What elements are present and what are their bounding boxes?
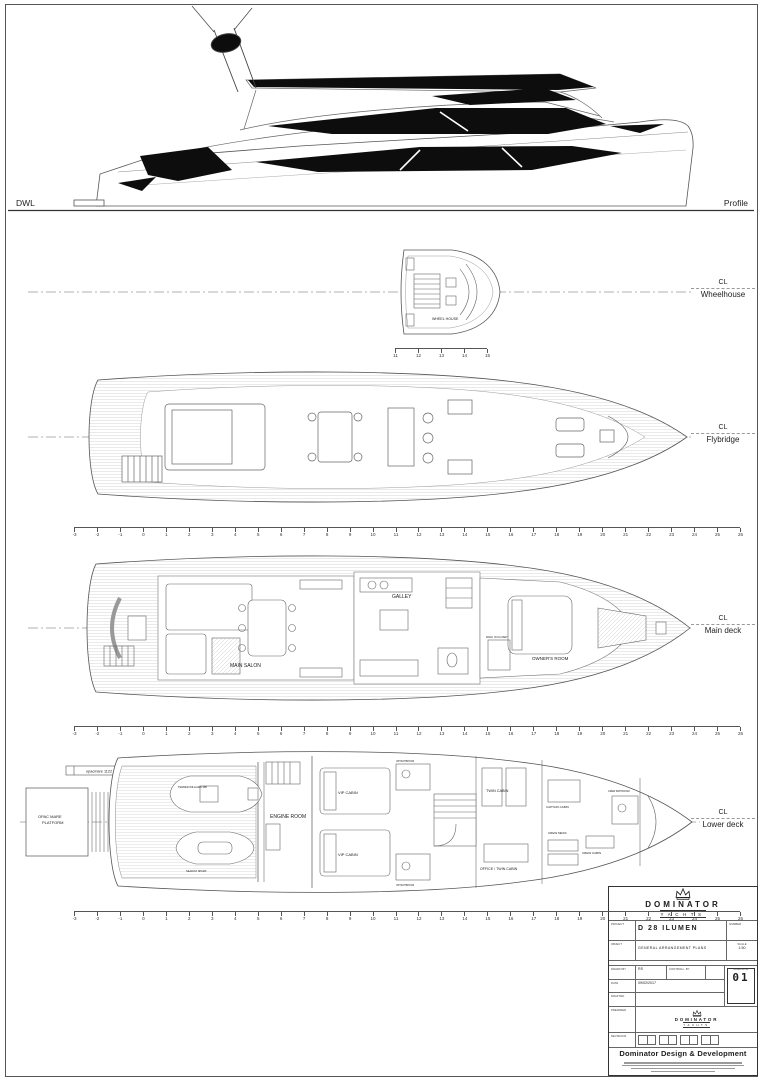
ruler-tick: 9 [350,912,351,916]
ruler-tick: 21 [625,727,626,731]
anchor-windlass [656,622,666,634]
owners-bed [508,596,572,654]
ruler-tick: 13 [441,912,442,916]
ruler-tick: 20 [602,528,603,532]
prepared-row: PREPARED DOMINATOR YACHTS [609,1006,757,1032]
ruler-tick: 26 [740,727,741,731]
drawing-nr-cell: DRAWING NR 01 [724,966,757,1006]
ruler-tick: 23 [671,912,672,916]
platform-label-1: OPAC MARE [38,814,62,819]
mini-brand-logo: DOMINATOR YACHTS [636,1007,757,1032]
ruler-tick: 0 [143,912,144,916]
vip-bathroom [396,854,430,880]
captain-cabin-label: CAPTAIN CABIN [546,805,569,809]
revision-box [659,1035,677,1045]
drawn-label: DRAWN BY [609,966,636,979]
ruler-tick: 21 [625,912,626,916]
ruler-tick: 10 [373,727,374,731]
antenna-whip [234,8,252,30]
ruler-tick: 13 [441,528,442,532]
vip-cabin-label: VIP CABIN [338,852,358,857]
fine-print-lines [609,1060,757,1075]
ruler-tick: 14 [464,349,465,353]
jet-ski [176,832,254,864]
mast-and-radome [192,6,256,92]
ruler-tick: 10 [373,912,374,916]
crew-bunk [586,836,614,848]
ruler-tick: 20 [602,912,603,916]
ruler-tick: 15 [487,528,488,532]
main-stairs [434,794,476,846]
sun-bed [165,404,265,470]
ruler-tick: 22 [648,528,649,532]
ruler-tick: 22 [648,727,649,731]
ruler-tick: -3 [74,727,75,731]
ruler-tick: 7 [304,528,305,532]
wheelhouse-plan: WHEEL HOUSE [0,228,762,358]
ruler-tick: 15 [487,727,488,731]
ruler-tick: -2 [97,912,98,916]
ruler-tick: 8 [327,912,328,916]
ruler-tick: 16 [510,912,511,916]
ruler-tick: 3 [212,528,213,532]
revisions-row: REVISIONS [609,1032,757,1047]
ruler-tick: 8 [327,727,328,731]
flybridge-bar [388,408,414,466]
ruler-tick: 13 [441,727,442,731]
lower-deck-station-ruler: -3-2-10123456789101112131415161718192021… [74,911,740,925]
ruler-tick: 17 [533,912,534,916]
flybridge-table [318,412,352,462]
ruler-tick: 18 [556,912,557,916]
ruler-tick: 17 [533,528,534,532]
revision-boxes [636,1033,757,1047]
ruler-tick: -3 [74,912,75,916]
wheelhouse-room-label: WHEEL HOUSE [432,317,459,321]
ruler-tick: 5 [258,528,259,532]
ruler-tick: 1 [166,528,167,532]
ruler-tick: 18 [556,528,557,532]
company-footer: Dominator Design & Development [609,1047,757,1060]
twin-bed [482,768,502,806]
ruler-tick: 24 [694,727,695,731]
ruler-tick: 19 [579,528,580,532]
ruler-tick: 11 [396,727,397,731]
passerelle-label: opacmare 1122 [86,770,112,774]
ruler-tick: 2 [189,727,190,731]
ruler-tick: 9 [350,528,351,532]
ruler-tick: 25 [717,727,718,731]
ruler-tick: 11 [396,912,397,916]
jetski-label: SEADOO SPARK [186,869,207,873]
owners-room-label: OWNER'S ROOM [532,656,569,661]
ruler-tick: 11 [395,349,396,353]
prepared-label: PREPARED [609,1007,636,1032]
ruler-tick: 1 [166,912,167,916]
ruler-tick: 6 [281,912,282,916]
ruler-tick: 5 [258,727,259,731]
ruler-tick: 3 [212,912,213,916]
drawn-value: RS [636,966,667,979]
main-deck-plan: MAIN SALON GALLEY OWNER'S ROOM WALK IN C… [0,548,762,706]
crew-bathroom-label: CREW BATHROOM [608,790,630,793]
meta-rows: DRAWN BY RS CONTROLL. BY DATE 09/02/2017… [609,965,757,1006]
deck-name: Flybridge [691,434,755,445]
ruler-tick: -2 [97,528,98,532]
cl-text: CL [691,278,755,289]
ruler-tick: 22 [648,912,649,916]
wheelhouse-hull [401,250,500,334]
main-deck-cl-label: CL Main deck [691,614,755,636]
ruler-tick: 12 [418,727,419,731]
ruler-tick: 3 [212,727,213,731]
revisions-label: REVISIONS [609,1033,636,1047]
main-salon-label: MAIN SALON [230,663,261,669]
lower-deck-plan: OPAC MARE PLATFORM opacmare 1122 ENGINE … [0,744,762,900]
drafted-label: DRAFTED [609,993,636,1005]
platform-label-2: PLATFORM [42,820,63,825]
ruler-tick: 15 [487,349,488,353]
ruler-tick: 23 [671,528,672,532]
object-label: OBJECT [609,941,636,960]
twin-cabin-label: TWIN CABIN [486,789,509,793]
crown-icon [692,1010,702,1017]
ruler-tick: 15 [487,912,488,916]
profile-label: Profile [724,198,748,208]
ruler-tick: 0 [143,727,144,731]
vip-bathroom-label: VIP BATHROOM [396,760,414,763]
scale-cell: SCALE 1:50 [727,941,757,960]
drawing-nr-value: 01 [732,971,749,984]
vip-cabin-label: VIP CABIN [338,790,358,795]
ruler-tick: -2 [97,727,98,731]
captain-bed [548,780,580,802]
profile-view [0,0,762,215]
ruler-tick: -1 [120,727,121,731]
brand-sub: YACHTS [683,1022,709,1028]
ruler-tick: -1 [120,912,121,916]
garage-stairs [266,762,300,784]
crew-cabin-label: CREW CABIN [582,851,601,855]
deck-name: Lower deck [691,819,755,830]
twin-bed [506,768,526,806]
ruler-tick: 20 [602,727,603,731]
ruler-tick: 2 [189,528,190,532]
crew-bathroom-area [612,796,638,824]
scale-value: 1:50 [729,946,755,950]
ruler-tick: 24 [694,528,695,532]
ruler-tick: 21 [625,528,626,532]
ruler-tick: 17 [533,727,534,731]
crew-bunk [548,840,578,851]
ruler-tick: 4 [235,528,236,532]
ruler-tick: 1 [166,727,167,731]
ruler-tick: 24 [694,912,695,916]
lounger [556,418,584,431]
ruler-tick: 19 [579,727,580,731]
date-value: 09/02/2017 [636,980,724,992]
cockpit-table [128,616,146,640]
date-label: DATE [609,980,636,992]
ruler-tick: 4 [235,727,236,731]
ruler-tick: -3 [74,528,75,532]
vip-bathroom [396,764,430,790]
ruler-tick: 4 [235,912,236,916]
wheelhouse-station-ruler: 1112131415 [395,348,487,362]
ruler-tick: 16 [510,727,511,731]
crew-bunk [548,854,578,865]
object-row: OBJECT GENERAL ARRANGEMENT PLANS SCALE 1… [609,940,757,960]
cl-text: CL [691,614,755,625]
crew-mess-label: CREW MESS [548,831,567,835]
ruler-tick: -1 [120,528,121,532]
ruler-tick: 10 [373,528,374,532]
walk-in-closet-label: WALK IN CLOSET [486,635,508,639]
brand-name: DOMINATOR [645,900,721,909]
cl-text: CL [691,423,755,434]
flybridge-plan [0,362,762,512]
ruler-tick: 12 [418,912,419,916]
ruler-tick: 19 [579,912,580,916]
superstructure-glazing [268,108,606,134]
wheelhouse-cl-label: CL Wheelhouse [691,278,755,300]
flybridge-cl-label: CL Flybridge [691,423,755,445]
ruler-tick: 14 [464,727,465,731]
ruler-tick: 25 [717,528,718,532]
ruler-tick: 7 [304,912,305,916]
galley-label: GALLEY [392,594,412,600]
ruler-tick: 25 [717,912,718,916]
ruler-tick: 13 [441,349,442,353]
ruler-tick: 6 [281,727,282,731]
crown-icon [674,888,692,900]
ruler-tick: 8 [327,528,328,532]
ruler-tick: 18 [556,727,557,731]
deck-name: Wheelhouse [691,289,755,300]
ruler-tick: 12 [418,528,419,532]
ruler-tick: 26 [740,912,741,916]
revision-box [638,1035,656,1045]
engine-room-label: ENGINE ROOM [270,814,306,820]
lower-deck-cl-label: CL Lower deck [691,808,755,830]
ruler-tick: 6 [281,528,282,532]
office-sofa-bed [484,844,528,862]
ruler-tick: 9 [350,727,351,731]
object-name: GENERAL ARRANGEMENT PLANS [636,941,727,960]
ruler-tick: 26 [740,528,741,532]
revision-box [680,1035,698,1045]
ruler-tick: 7 [304,727,305,731]
cl-text: CL [691,808,755,819]
antenna-whip [192,6,214,32]
ruler-tick: 14 [464,528,465,532]
office-twin-label: OFFICE / TWIN CABIN [480,867,518,871]
tender-label: TENDER WILLIAMS 385 [178,785,207,789]
ruler-tick: 2 [189,912,190,916]
lounger [556,444,584,457]
ruler-tick: 12 [418,349,419,353]
vip-bathroom-label: VIP BATHROOM [396,884,414,887]
deck-name: Main deck [691,625,755,636]
ruler-tick: 23 [671,727,672,731]
flybridge-station-ruler: -3-2-10123456789101112131415161718192021… [74,527,740,541]
dwl-label: DWL [16,198,35,208]
controlled-label: CONTROLL. BY [667,966,706,979]
main-deck-station-ruler: -3-2-10123456789101112131415161718192021… [74,726,740,740]
ruler-tick: 5 [258,912,259,916]
revision-box [701,1035,719,1045]
ruler-tick: 0 [143,528,144,532]
ruler-tick: 14 [464,912,465,916]
ruler-tick: 11 [396,528,397,532]
drawing-sheet: DWL Profile WHEEL HOUSE 1112131415 CL Wh… [0,0,762,1080]
dining-table [248,600,286,656]
ruler-tick: 16 [510,528,511,532]
